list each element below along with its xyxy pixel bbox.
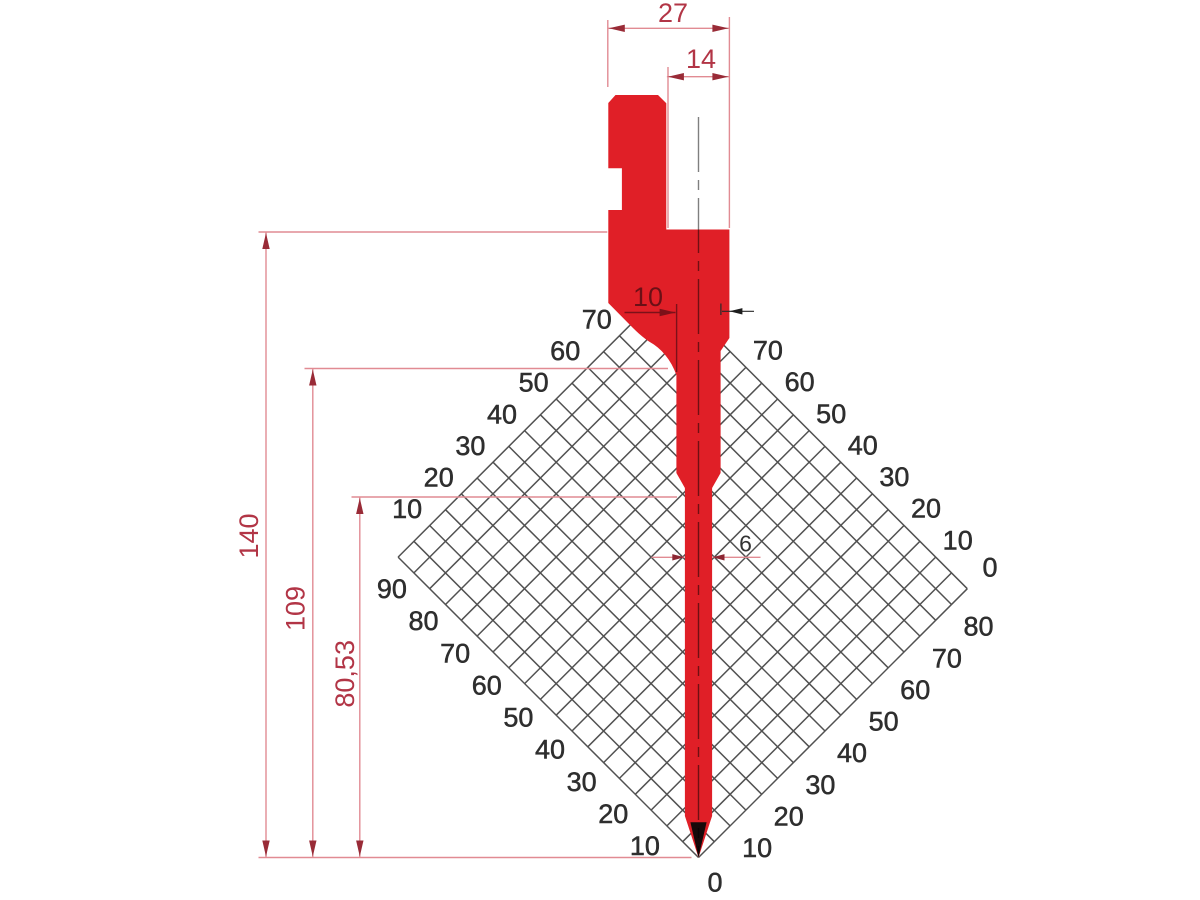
svg-text:30: 30	[879, 462, 909, 492]
svg-text:80: 80	[963, 612, 993, 642]
svg-text:40: 40	[535, 735, 565, 765]
svg-text:10: 10	[630, 831, 660, 861]
svg-text:30: 30	[567, 767, 597, 797]
svg-text:10: 10	[742, 833, 772, 863]
svg-text:70: 70	[753, 336, 783, 366]
svg-text:20: 20	[598, 799, 628, 829]
svg-text:10: 10	[633, 282, 663, 312]
svg-text:109: 109	[281, 586, 311, 631]
svg-text:60: 60	[900, 675, 930, 705]
svg-text:70: 70	[440, 638, 470, 668]
svg-text:20: 20	[774, 802, 804, 832]
svg-text:40: 40	[487, 399, 517, 429]
svg-text:50: 50	[519, 368, 549, 398]
svg-text:60: 60	[550, 336, 580, 366]
svg-text:70: 70	[932, 643, 962, 673]
svg-text:40: 40	[837, 738, 867, 768]
svg-text:50: 50	[869, 707, 899, 737]
svg-text:6: 6	[739, 531, 752, 557]
svg-text:80: 80	[408, 606, 438, 636]
svg-text:50: 50	[816, 399, 846, 429]
svg-text:60: 60	[785, 367, 815, 397]
svg-text:90: 90	[377, 574, 407, 604]
svg-text:70: 70	[582, 304, 612, 334]
svg-text:10: 10	[392, 494, 422, 524]
svg-text:20: 20	[424, 463, 454, 493]
svg-text:40: 40	[848, 430, 878, 460]
svg-text:30: 30	[805, 770, 835, 800]
svg-text:140: 140	[234, 513, 264, 558]
svg-text:50: 50	[503, 703, 533, 733]
svg-text:27: 27	[658, 0, 688, 28]
svg-text:20: 20	[911, 494, 941, 524]
svg-text:80,53: 80,53	[330, 640, 360, 708]
svg-text:0: 0	[982, 553, 997, 583]
svg-text:14: 14	[686, 44, 716, 74]
svg-text:30: 30	[455, 431, 485, 461]
svg-text:60: 60	[472, 671, 502, 701]
svg-text:0: 0	[707, 868, 722, 898]
svg-text:10: 10	[943, 525, 973, 555]
